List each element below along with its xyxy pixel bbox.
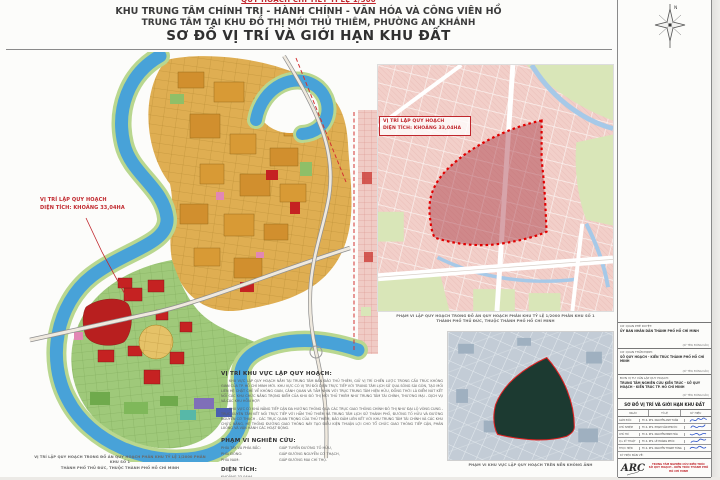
signature-name: Th.S. KTS. NGUYỄN ANH TUẤN (640, 419, 685, 422)
left-planning-label: VỊ TRÍ LẬP QUY HOẠCH DIỆN TÍCH: KHOẢNG 3… (40, 196, 125, 212)
page-title: SƠ ĐỒ VỊ TRÍ VÀ GIỚI HẠN KHU ĐẤT (0, 30, 617, 44)
aerial-caption: PHẠM VI KHU VỰC LẬP QUY HOẠCH TRÊN NỀN K… (447, 463, 614, 468)
notes-area-heading: DIỆN TÍCH: (221, 467, 443, 473)
sheet-name-cell: SƠ ĐỒ VỊ TRÍ VÀ GIỚI HẠN KHU ĐẤT (618, 399, 711, 410)
title-block: CƠ QUAN PHÊ DUYỆT: ỦY BAN NHÂN DÂN THÀNH… (618, 322, 711, 478)
arc-logo-swoosh (621, 470, 645, 476)
drawing-code-row: KÝ HIỆU BẢN VẼ: (618, 452, 711, 459)
firm-name: TRUNG TÂM NGHIÊN CỨU KIẾN TRÚC SỞ QUY HO… (648, 463, 711, 474)
right-map-caption: PHẠM VI LẬP QUY HOẠCH TRONG ĐỒ ÁN QUY HO… (377, 314, 614, 325)
sign-note: (KÝ TÊN, ĐÓNG DẤU) (683, 394, 709, 397)
appraising-agency-section: CƠ QUAN THẨM ĐỊNH: SỞ QUY HOẠCH - KIẾN T… (618, 349, 711, 375)
appraising-agency-name: SỞ QUY HOẠCH - KIẾN TRÚC THÀNH PHỐ HỒ CH… (620, 355, 709, 363)
notes-paragraph-1: KHU VỰC LẬP QUY HOẠCH NẰM TẠI TRUNG TÂM … (221, 379, 443, 404)
left-map-caption-line2: THÀNH PHỐ THỦ ĐỨC, THUỘC THÀNH PHỐ HỒ CH… (30, 466, 210, 471)
signature-role: CHỦ NHIỆM (618, 426, 640, 429)
notes-scope-heading: PHẠM VI NGHIÊN CỨU: (221, 438, 443, 444)
approving-agency-label: CƠ QUAN PHÊ DUYỆT: (620, 324, 709, 328)
header-project-line: KHU TRUNG TÂM CHÍNH TRỊ - HÀNH CHÍNH - V… (0, 7, 617, 17)
meta-date: NGÀY (618, 410, 649, 416)
signature-role: Q.L KỸ THUẬT (618, 440, 640, 443)
consultant-label: ĐƠN VỊ TƯ VẤN LẬP QUY HOẠCH: (620, 376, 709, 380)
approving-agency-name: ỦY BAN NHÂN DÂN THÀNH PHỐ HỒ CHÍ MINH (620, 329, 709, 333)
signature-row: THỰC HIỆN Th.S. KTS. NGUYỄN THANH TÙNG (618, 445, 711, 452)
page-edge-right (712, 0, 720, 480)
signature-mark (688, 444, 708, 452)
left-map-caption: VỊ TRÍ LẬP QUY HOẠCH TRONG ĐỒ ÁN QUY HOẠ… (30, 455, 210, 471)
approving-agency-section: CƠ QUAN PHÊ DUYỆT: ỦY BAN NHÂN DÂN THÀNH… (618, 323, 711, 349)
sign-note: (KÝ TÊN, ĐÓNG DẤU) (683, 344, 709, 347)
firm-row: ARC TRUNG TÂM NGHIÊN CỨU KIẾN TRÚC SỞ QU… (618, 459, 711, 478)
left-map-caption-line1: VỊ TRÍ LẬP QUY HOẠCH TRONG ĐỒ ÁN QUY HOẠ… (30, 455, 210, 466)
aerial-photo (447, 331, 614, 461)
signature-name: Th.S. KTS. NGUYỄN MINH HÒA (640, 433, 685, 436)
left-planning-label-line1: VỊ TRÍ LẬP QUY HOẠCH (40, 196, 125, 204)
signature-name: Th.S. KTS. LÊ HOÀNG PHÚC (640, 440, 685, 443)
svg-text:N: N (674, 5, 677, 11)
header-location-line: TRUNG TÂM TẠI KHU ĐÔ THỊ MỚI THỦ THIÊM, … (0, 19, 617, 28)
notes-block: VỊ TRÍ KHU VỰC LẬP QUY HOẠCH: KHU VỰC LẬ… (221, 371, 443, 480)
header-scale-line: QUY HOẠCH CHI TIẾT TỈ LỆ 1/500 (0, 0, 617, 4)
consultant-name: TRUNG TÂM NGHIÊN CỨU KIẾN TRÚC - SỞ QUY … (620, 381, 709, 389)
signature-name: Th.S. KTS. NGUYỄN THANH TÙNG (640, 447, 685, 450)
scope-value: GIÁP ĐƯỜNG MAI CHÍ THỌ. (279, 458, 327, 464)
north-arrow-icon: N (648, 2, 692, 50)
header-rule (6, 49, 612, 50)
notes-location-heading: VỊ TRÍ KHU VỰC LẬP QUY HOẠCH: (221, 371, 443, 377)
right-planning-label: VỊ TRÍ LẬP QUY HOẠCH DIỆN TÍCH: KHOẢNG 3… (379, 116, 471, 136)
aerial-caption-line: PHẠM VI KHU VỰC LẬP QUY HOẠCH TRÊN NỀN K… (447, 463, 614, 468)
scope-label: PHÍA NAM: (221, 458, 279, 464)
signature-role: CHỦ TRÌ (618, 433, 640, 436)
firm-name-line2: SỞ QUY HOẠCH - KIẾN TRÚC THÀNH PHỐ HỒ CH… (648, 466, 709, 473)
consultant-section: ĐƠN VỊ TƯ VẤN LẬP QUY HOẠCH: TRUNG TÂM N… (618, 375, 711, 399)
signature-name: Th.S. KTS. PHẠM VĂN PHƯỚC (640, 426, 685, 429)
right-map-caption-line2: THÀNH PHỐ THỦ ĐỨC, THUỘC THÀNH PHỐ HỒ CH… (377, 319, 614, 324)
plan-sheet: QUY HOẠCH CHI TIẾT TỈ LỆ 1/500 KHU TRUNG… (0, 0, 720, 480)
arc-logo: ARC (618, 463, 648, 474)
signature-role: GIÁM ĐỐC (618, 419, 640, 422)
right-planning-label-line2: DIỆN TÍCH: KHOẢNG 33,04HA (383, 126, 467, 133)
signature-role: THỰC HIỆN (618, 447, 640, 450)
appraising-agency-label: CƠ QUAN THẨM ĐỊNH: (620, 350, 709, 354)
right-planning-label-line1: VỊ TRÍ LẬP QUY HOẠCH (383, 119, 467, 126)
left-planning-label-line2: DIỆN TÍCH: KHOẢNG 33,04HA (40, 204, 125, 212)
adjacent-zoning-strip (358, 110, 378, 354)
meta-scale: TỈ LỆ (649, 410, 680, 416)
right-map-graphic (377, 64, 614, 312)
notes-paragraph-2: KHU VỰC CÓ KHẢ NĂNG TIẾP CẬN ĐA HƯỚNG TH… (221, 407, 443, 432)
sign-note: (KÝ TÊN, ĐÓNG DẤU) (683, 370, 709, 373)
